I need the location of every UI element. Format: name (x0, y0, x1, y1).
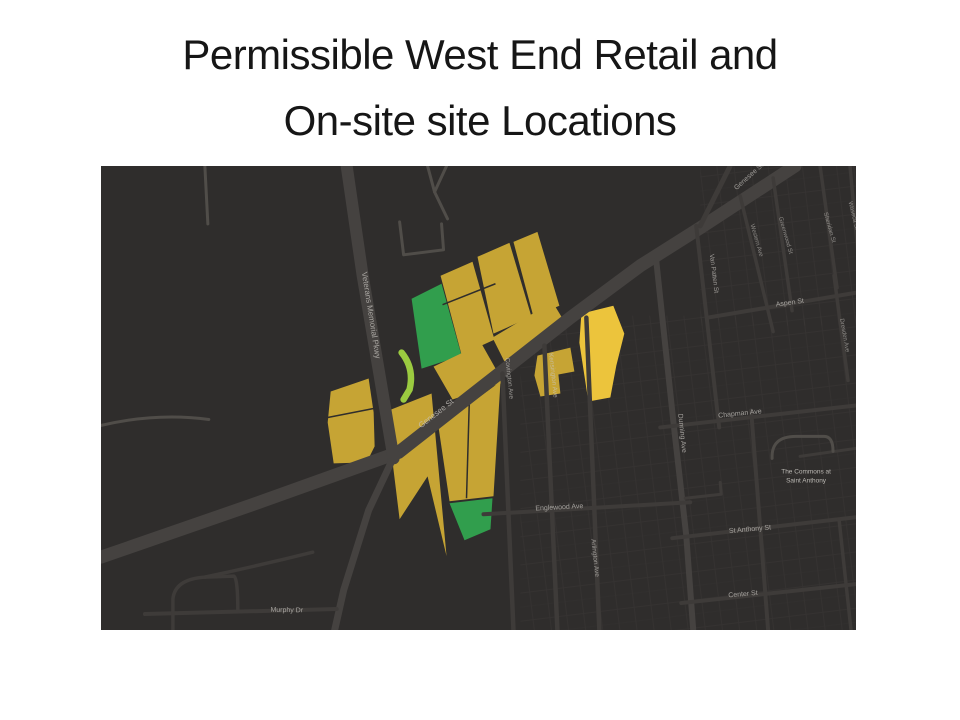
map-image: Veterans Memorial PkwyGenesee StGenesee … (101, 166, 856, 630)
road-bottomleft-loop-rd (173, 576, 238, 630)
road-bottomleft-spur-rd (205, 552, 313, 577)
label-commons-line1: The Commons at (781, 468, 831, 475)
road-top-y-branch-rd (435, 166, 447, 192)
title-line-2: On-site site Locations (0, 88, 960, 154)
title-line-1: Permissible West End Retail and (0, 22, 960, 88)
road-topleft-faint-vert-rd (205, 166, 208, 224)
parcel-gold-h (328, 379, 375, 464)
label-murphy-dr: Murphy Dr (270, 607, 303, 615)
label-commons-line2: Saint Anthony (786, 477, 827, 484)
parcel-lightgreen-sliver (402, 353, 411, 400)
parcel-green-lower (450, 498, 493, 540)
road-veterans-memorial-pkwy-lower (335, 461, 392, 630)
road-top-u-rd (400, 222, 444, 255)
road-covington-ave (502, 374, 513, 630)
road-top-y-rd (428, 166, 448, 219)
slide-title: Permissible West End Retail and On-site … (0, 22, 960, 154)
map-svg: Veterans Memorial PkwyGenesee StGenesee … (101, 166, 856, 630)
road-left-faint-curve-rd (101, 417, 209, 425)
